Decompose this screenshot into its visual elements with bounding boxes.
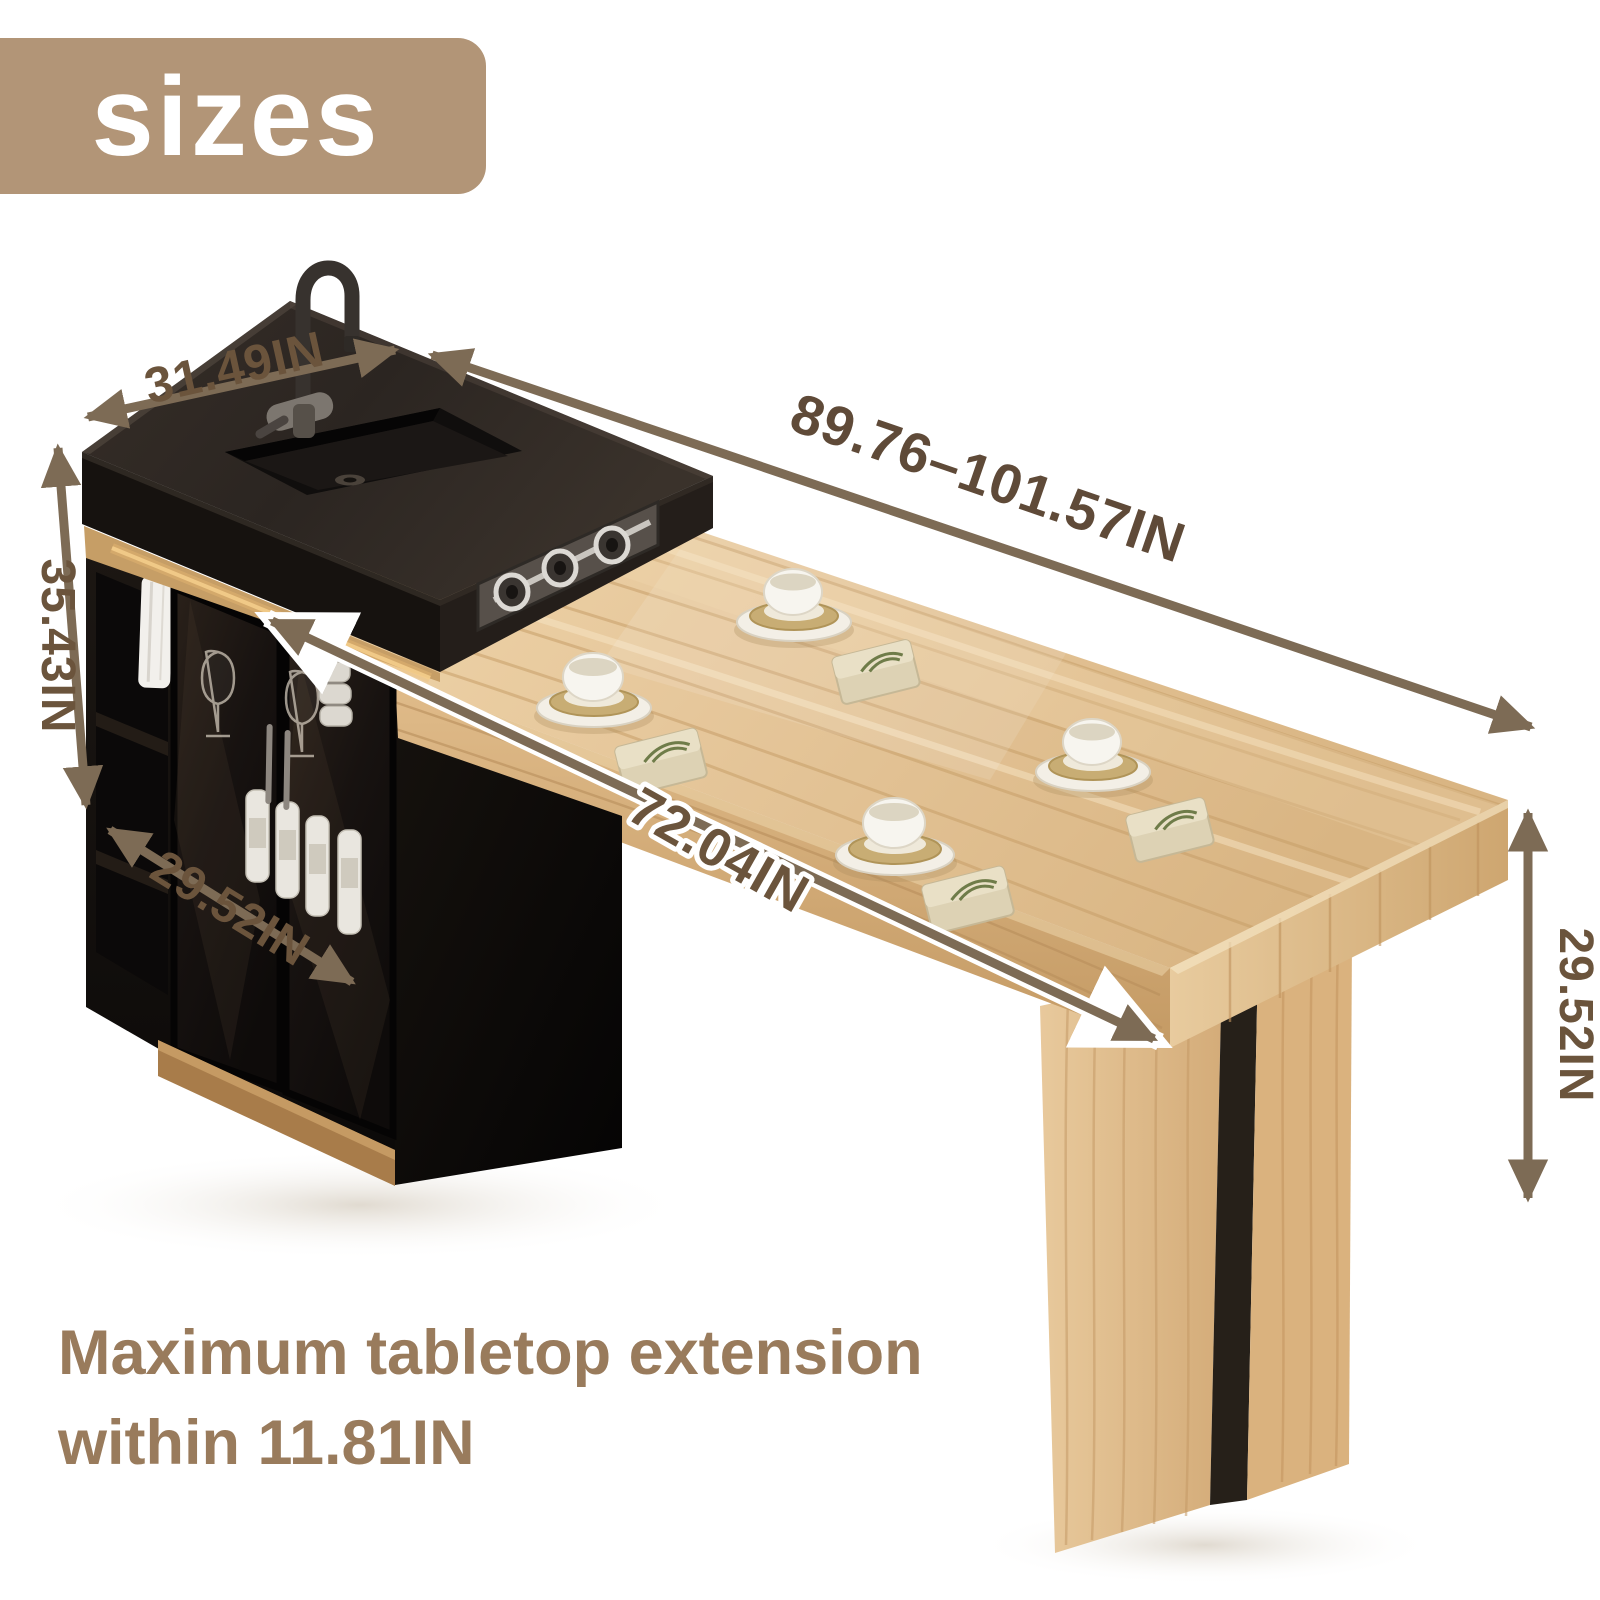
caption: Maximum tabletop extension within 11.81I…: [58, 1308, 923, 1488]
cabinet-open-shelf: [96, 572, 174, 995]
knob-icon: [496, 575, 528, 609]
knob-icon: [596, 528, 628, 562]
floor-shadow-leg: [975, 1505, 1435, 1585]
caption-line-2: within 11.81IN: [58, 1398, 923, 1488]
dim-label-island-height: 35.43IN: [31, 558, 84, 733]
product-dimension-image: 31.49IN 89.76–101.57IN 35.43IN 29.52IN 7…: [0, 0, 1600, 1600]
dim-label-table-height: 29.52IN: [1549, 927, 1600, 1102]
knob-icon: [544, 551, 576, 585]
caption-line-1: Maximum tabletop extension: [58, 1308, 923, 1398]
size-badge-label: sizes: [92, 54, 381, 179]
towel: [138, 575, 174, 688]
canister-stack: [318, 662, 352, 726]
size-badge: sizes: [0, 38, 486, 194]
